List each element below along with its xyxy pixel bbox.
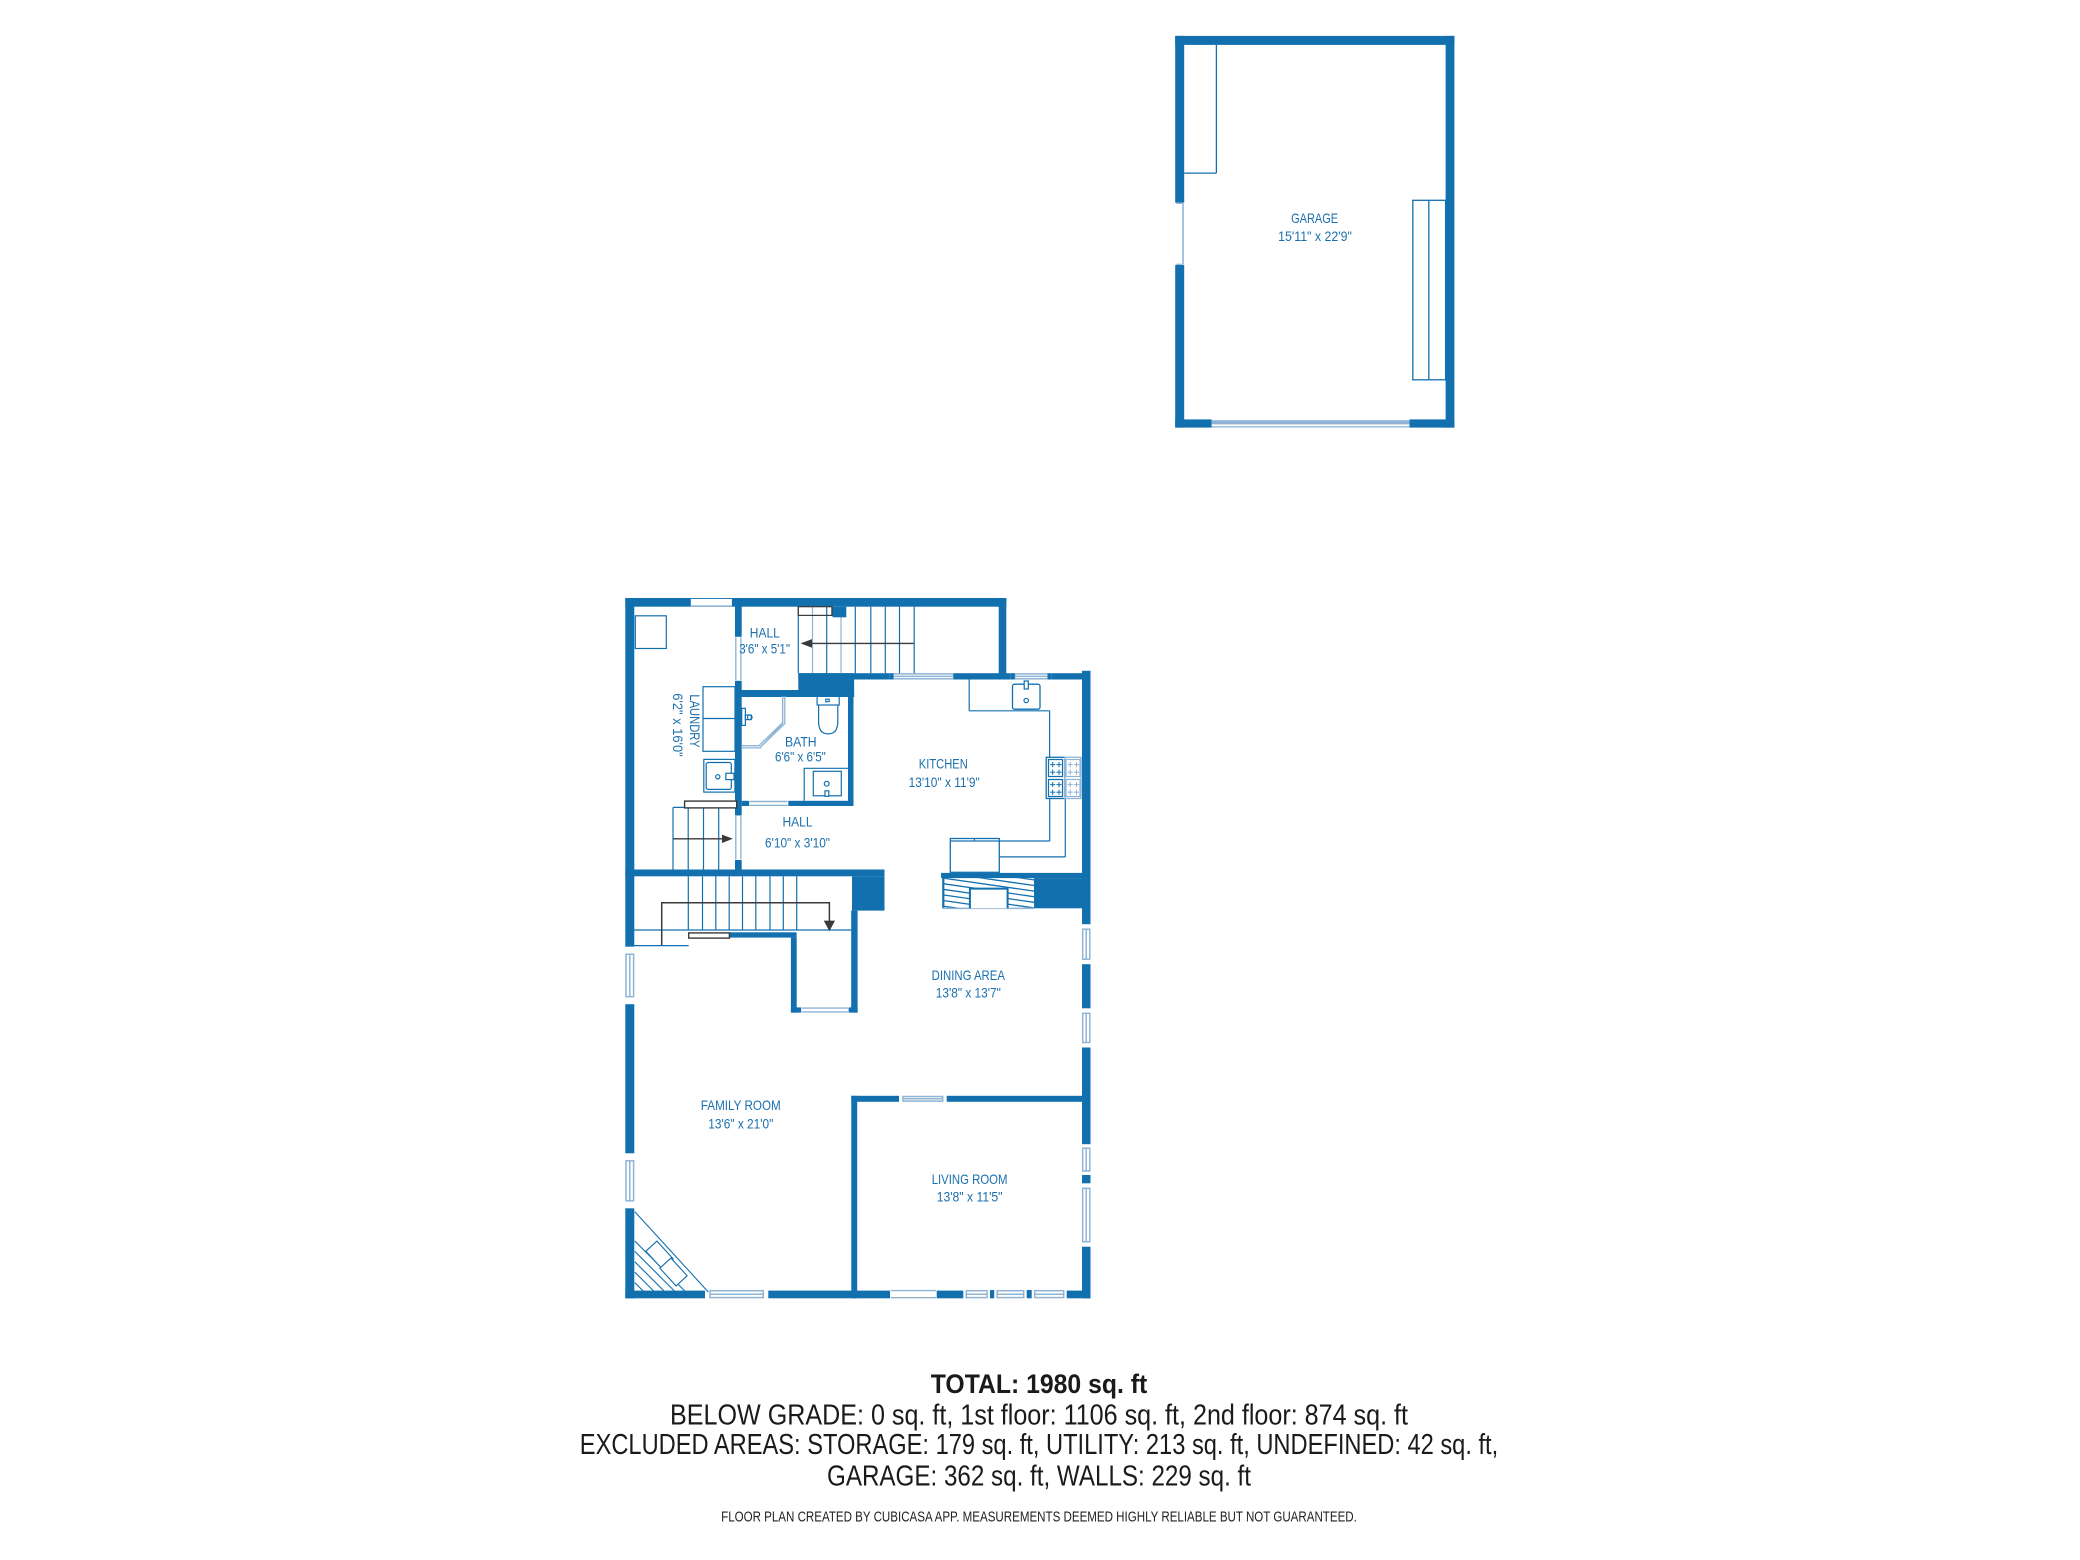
svg-text:EXCLUDED AREAS: STORAGE: 179 s: EXCLUDED AREAS: STORAGE: 179 sq. ft, UTI…	[580, 1429, 1498, 1461]
svg-text:FAMILY ROOM: FAMILY ROOM	[701, 1098, 781, 1113]
svg-text:HALL: HALL	[783, 815, 813, 830]
svg-text:DINING AREA: DINING AREA	[932, 968, 1006, 983]
svg-text:6'2" x 16'0": 6'2" x 16'0"	[670, 693, 685, 757]
svg-text:KITCHEN: KITCHEN	[919, 756, 968, 771]
svg-text:TOTAL: 1980 sq. ft: TOTAL: 1980 sq. ft	[931, 1369, 1148, 1399]
svg-text:LIVING ROOM: LIVING ROOM	[932, 1172, 1008, 1187]
svg-text:13'10" x 11'9": 13'10" x 11'9"	[909, 775, 980, 790]
svg-text:6'6" x 6'5": 6'6" x 6'5"	[775, 750, 826, 765]
svg-text:BATH: BATH	[785, 735, 817, 750]
svg-text:3'6" x 5'1": 3'6" x 5'1"	[739, 641, 790, 656]
svg-text:LAUNDRY: LAUNDRY	[687, 694, 702, 747]
svg-text:13'8" x 13'7": 13'8" x 13'7"	[936, 986, 1001, 1001]
svg-text:BELOW GRADE: 0 sq. ft, 1st flo: BELOW GRADE: 0 sq. ft, 1st floor: 1106 s…	[670, 1400, 1408, 1432]
svg-text:GARAGE: GARAGE	[1291, 211, 1338, 226]
svg-text:FLOOR PLAN CREATED BY CUBICASA: FLOOR PLAN CREATED BY CUBICASA APP. MEAS…	[721, 1509, 1357, 1526]
svg-text:13'6" x 21'0": 13'6" x 21'0"	[708, 1116, 773, 1131]
svg-text:15'11" x 22'9": 15'11" x 22'9"	[1278, 229, 1352, 244]
svg-text:HALL: HALL	[750, 626, 780, 641]
svg-text:6'10" x 3'10": 6'10" x 3'10"	[765, 836, 830, 851]
svg-text:13'8" x 11'5": 13'8" x 11'5"	[937, 1190, 1003, 1205]
svg-text:GARAGE: 362 sq. ft, WALLS: 229: GARAGE: 362 sq. ft, WALLS: 229 sq. ft	[827, 1461, 1251, 1493]
